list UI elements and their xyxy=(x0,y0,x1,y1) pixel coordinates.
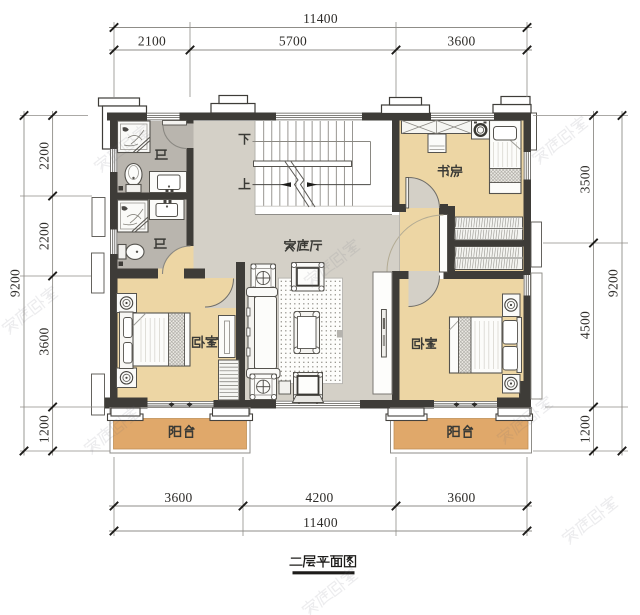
svg-text:4200: 4200 xyxy=(305,490,333,505)
svg-text:11400: 11400 xyxy=(303,11,338,26)
svg-text:4500: 4500 xyxy=(578,311,593,339)
svg-text:1200: 1200 xyxy=(37,415,52,443)
svg-text:5700: 5700 xyxy=(279,34,307,49)
svg-text:9200: 9200 xyxy=(606,269,621,297)
svg-text:11400: 11400 xyxy=(303,515,338,530)
svg-text:3600: 3600 xyxy=(447,34,475,49)
svg-text:2100: 2100 xyxy=(138,34,166,49)
svg-text:3500: 3500 xyxy=(578,165,593,193)
svg-text:3600: 3600 xyxy=(37,327,52,355)
svg-text:2200: 2200 xyxy=(37,142,52,170)
svg-text:3600: 3600 xyxy=(164,490,192,505)
svg-text:2200: 2200 xyxy=(37,222,52,250)
svg-text:3600: 3600 xyxy=(447,490,475,505)
svg-text:9200: 9200 xyxy=(8,269,23,297)
svg-text:1200: 1200 xyxy=(578,415,593,443)
